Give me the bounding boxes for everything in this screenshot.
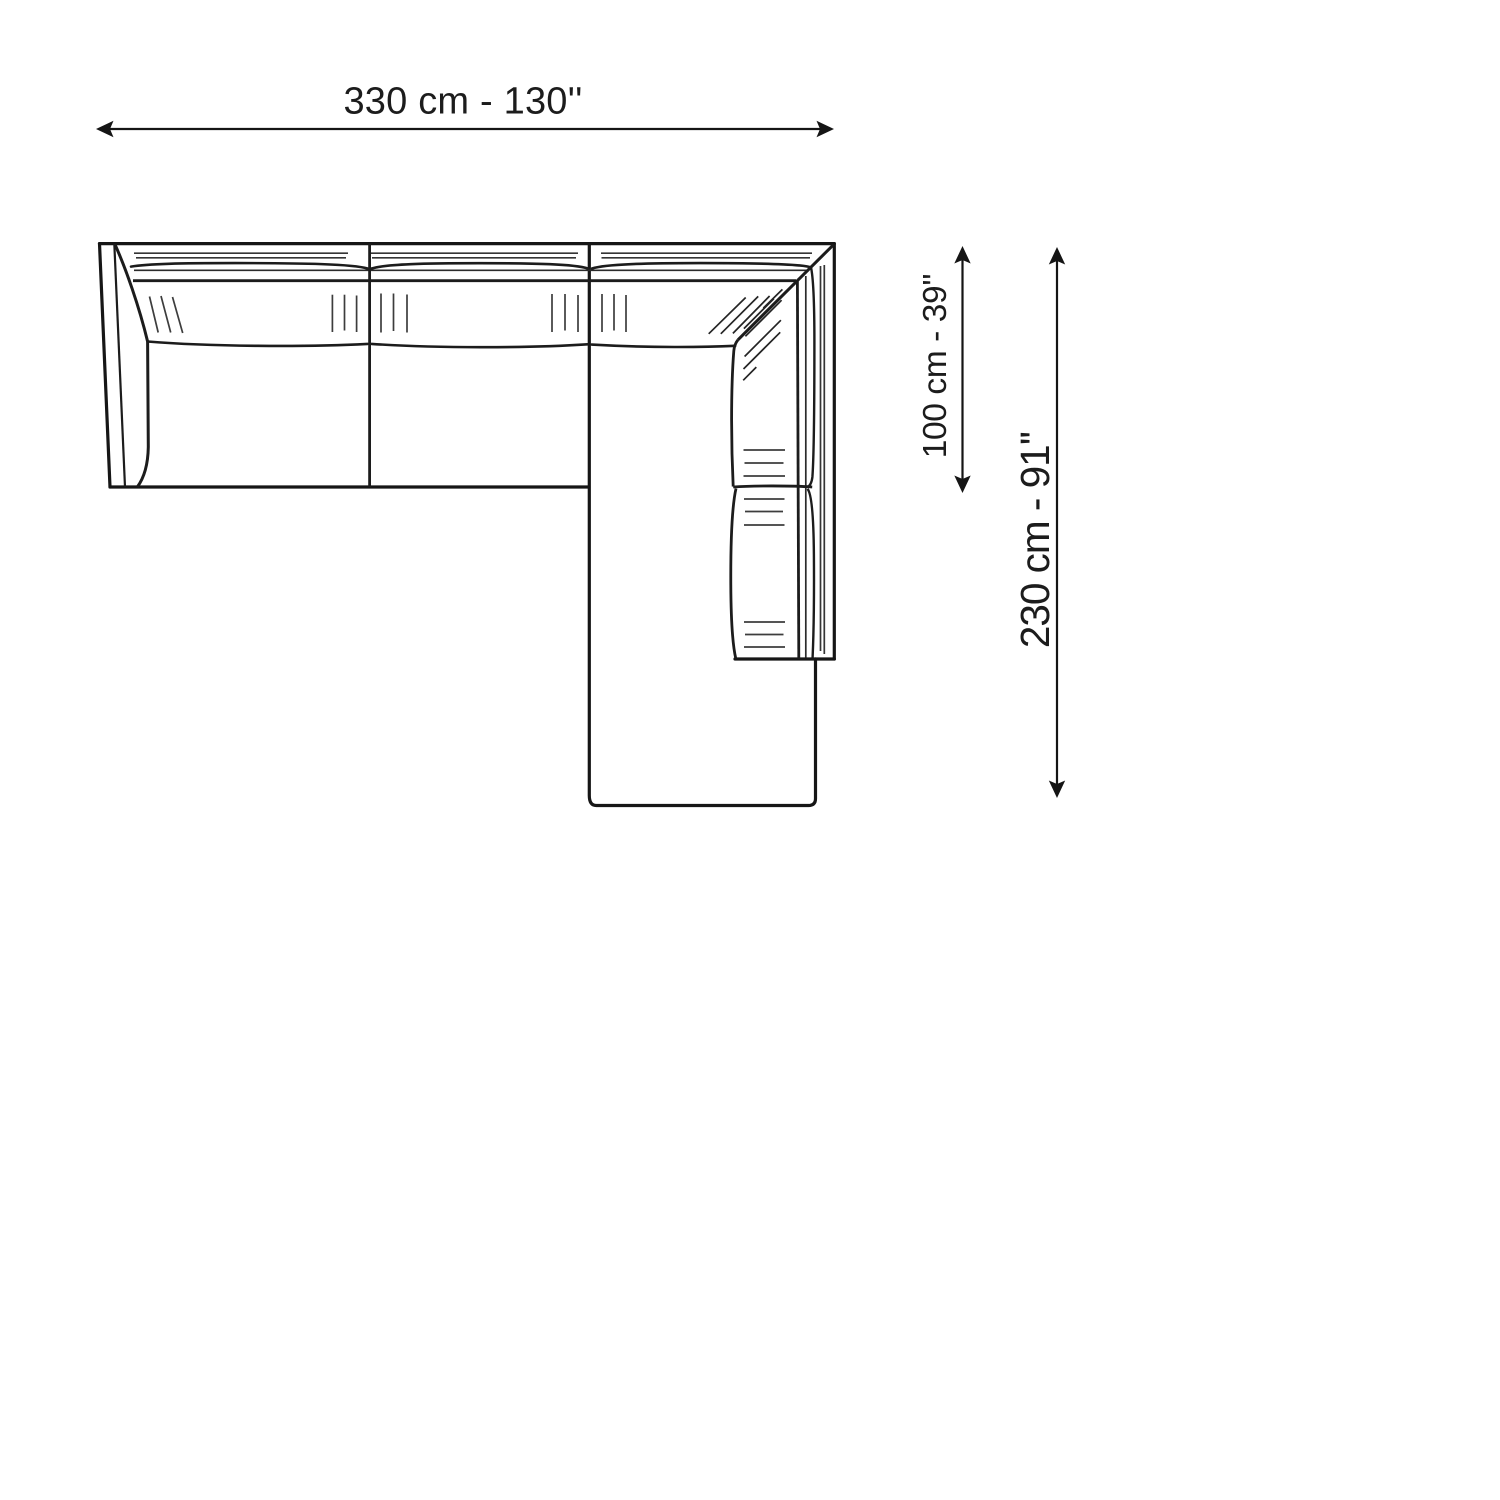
svg-text:330 cm - 130'': 330 cm - 130'' [343, 81, 582, 123]
svg-text:100 cm - 39'': 100 cm - 39'' [917, 274, 954, 458]
svg-text:230 cm - 91'': 230 cm - 91'' [1012, 432, 1058, 648]
